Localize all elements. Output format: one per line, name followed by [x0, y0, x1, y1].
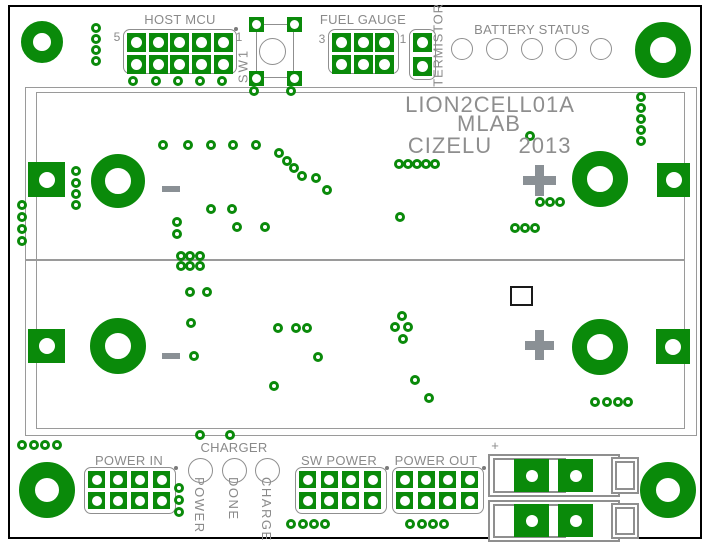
power-in-header-pad [153, 471, 170, 488]
via [158, 140, 168, 150]
host-mcu-header-pad-hole [174, 59, 185, 70]
termistor-header-pad [413, 57, 432, 76]
via [71, 189, 81, 199]
sw-power-header-pad [364, 471, 381, 488]
mount-hole-top-right [635, 22, 691, 78]
sw-power-header-pad-hole [324, 496, 334, 506]
via [17, 224, 27, 234]
via [405, 519, 415, 529]
power-out-header-pad-hole [443, 475, 453, 485]
via [227, 204, 237, 214]
sw-power-header-pad-hole [303, 475, 313, 485]
power-in-header-pad-hole [135, 496, 145, 506]
via [189, 351, 199, 361]
power-in-header-pad-hole [92, 475, 102, 485]
via [439, 519, 449, 529]
power-in-header-pad-hole [157, 496, 167, 506]
connector-pad-4 [558, 504, 593, 537]
via [309, 519, 319, 529]
fuel-gauge-header-pad [354, 33, 373, 52]
battery-connector-block-2-clamp-inner [615, 507, 635, 535]
host-mcu-header-pad-hole [218, 59, 229, 70]
sw-power-label: SW POWER [301, 454, 377, 467]
via [91, 56, 101, 66]
host-mcu-header-pad-hole [131, 37, 142, 48]
host-mcu-header-pad-hole [153, 59, 164, 70]
host-mcu-header-pad [149, 33, 168, 52]
connector-plus-label: + [491, 439, 499, 452]
via [185, 287, 195, 297]
via [602, 397, 612, 407]
via [417, 519, 427, 529]
power-out-header-pad-hole [465, 475, 475, 485]
host-mcu-pin1-label: 1 [236, 31, 243, 43]
power-out-header-pad-hole [465, 496, 475, 506]
via [636, 103, 646, 113]
via [17, 212, 27, 222]
via [91, 45, 101, 55]
via [311, 173, 321, 183]
sw-power-header-pad [342, 492, 359, 509]
via [174, 495, 184, 505]
termistor-header-pad-hole [417, 61, 428, 72]
via [398, 334, 408, 344]
sw-power-header-pad-hole [303, 496, 313, 506]
via [173, 76, 183, 86]
host-mcu-header-pad-hole [153, 37, 164, 48]
via [545, 197, 555, 207]
sw1-pad [249, 71, 264, 86]
host-mcu-header-pad-hole [131, 59, 142, 70]
battery2-minus-mark [162, 353, 180, 359]
fuel-gauge-header-pad-hole [379, 59, 390, 70]
via [249, 86, 259, 96]
sw1-pad-hole [290, 20, 299, 29]
battery2-pos-edge-pad [656, 329, 690, 364]
battery1-neg-edge-pad [28, 162, 65, 197]
termistor-header-pad-hole [417, 37, 428, 48]
via [286, 519, 296, 529]
via [17, 200, 27, 210]
power-out-header-pad [396, 492, 413, 509]
host-mcu-header-pad [149, 55, 168, 74]
via [390, 322, 400, 332]
sw1-pad [287, 71, 302, 86]
battery-status-led [521, 38, 543, 60]
power-in-header-pin1-dot [174, 466, 178, 470]
via [320, 519, 330, 529]
via [636, 136, 646, 146]
sw1-pad-hole [290, 74, 299, 83]
via [172, 229, 182, 239]
sw-power-header-pad-hole [368, 475, 378, 485]
connector-pad-1 [514, 459, 549, 492]
fuel-gauge-header-pad-hole [358, 59, 369, 70]
via [174, 483, 184, 493]
battery-status-led [451, 38, 473, 60]
via [410, 375, 420, 385]
sw-power-header-pad [299, 492, 316, 509]
termistor-header-pad [413, 33, 432, 52]
fuel-gauge-header-pad-hole [336, 59, 347, 70]
sw-power-header-pad [321, 471, 338, 488]
fuel-gauge-pin3-label: 3 [319, 33, 326, 45]
via [613, 397, 623, 407]
via [71, 166, 81, 176]
power-out-header-pad [418, 471, 435, 488]
power-out-header-pad [439, 492, 456, 509]
via [29, 440, 39, 450]
via [52, 440, 62, 450]
power-out-header-pad-hole [400, 475, 410, 485]
fuel-gauge-header-pad-hole [358, 37, 369, 48]
power-out-label: POWER OUT [395, 454, 478, 467]
power-in-header-pad-hole [135, 475, 145, 485]
via [172, 217, 182, 227]
sw-power-header-pad [299, 471, 316, 488]
via [195, 76, 205, 86]
connector-pad-3-hole [526, 515, 538, 527]
battery1-minus-mark [162, 186, 180, 192]
via [298, 519, 308, 529]
power-in-header-pad-hole [92, 496, 102, 506]
via [91, 23, 101, 33]
power-in-header-pad-hole [113, 475, 123, 485]
via [202, 287, 212, 297]
sw1-pad-hole [252, 74, 261, 83]
mount-hole-bottom-right [640, 462, 696, 518]
sw1-pad [249, 17, 264, 32]
host-mcu-header-pad [214, 33, 233, 52]
via [397, 311, 407, 321]
battery1-neg-edge-pad-hole [39, 172, 55, 188]
battery2-plus-terminal [572, 319, 628, 375]
via [186, 318, 196, 328]
via [195, 261, 205, 271]
power-in-header-pad-hole [113, 496, 123, 506]
sw1-label: SW1 [237, 49, 250, 83]
connector-pad-2-hole [570, 470, 582, 482]
connector-pad-4-hole [570, 515, 582, 527]
via [510, 223, 520, 233]
fuel-gauge-pin1-label: 1 [400, 33, 407, 45]
power-in-header-pad [131, 471, 148, 488]
via [128, 76, 138, 86]
sw-power-header-pad-hole [346, 475, 356, 485]
battery-status-led [590, 38, 612, 60]
connector-pad-3 [514, 504, 549, 537]
via [228, 140, 238, 150]
sw1-pad [287, 17, 302, 32]
power-in-header-pad [88, 471, 105, 488]
via [636, 114, 646, 124]
via [206, 140, 216, 150]
sw-power-header-pad-hole [324, 475, 334, 485]
via [286, 86, 296, 96]
sw-power-header-pad [321, 492, 338, 509]
led-power-label: POWER [193, 477, 206, 534]
via [71, 178, 81, 188]
via [424, 393, 434, 403]
via [183, 140, 193, 150]
power-out-header-pad [439, 471, 456, 488]
power-in-header-pad [88, 492, 105, 509]
power-in-header-pad [110, 492, 127, 509]
via [174, 507, 184, 517]
battery2-pos-edge-pad-hole [665, 339, 681, 355]
battery2-minus-terminal [90, 318, 146, 374]
via [260, 222, 270, 232]
charger-label: CHARGER [200, 441, 267, 454]
host-mcu-header-pad-hole [218, 37, 229, 48]
host-mcu-header-pad [192, 55, 211, 74]
via [185, 251, 195, 261]
via [322, 185, 332, 195]
battery1-plus-terminal [572, 151, 628, 207]
sw-power-header-pin1-dot [385, 466, 389, 470]
fuel-gauge-header-pad-hole [379, 37, 390, 48]
battery-connector-block-1-clamp-inner [615, 461, 635, 490]
power-in-header-pad [131, 492, 148, 509]
via [428, 519, 438, 529]
host-mcu-header-pad [170, 55, 189, 74]
battery1-pos-edge-pad [657, 163, 690, 197]
sw-power-header-pad-hole [346, 496, 356, 506]
host-mcu-header-pad-hole [196, 37, 207, 48]
via [225, 430, 235, 440]
sw-power-header-pad-hole [368, 496, 378, 506]
fuel-gauge-header-pad [354, 55, 373, 74]
battery2-neg-edge-pad-hole [39, 338, 55, 354]
via [273, 323, 283, 333]
fuel-gauge-header-pad [375, 55, 394, 74]
battery2-plus-mark [525, 341, 554, 350]
smd-component-outline [510, 286, 533, 306]
host-mcu-header-pad-hole [196, 59, 207, 70]
mount-hole-bottom-left [19, 462, 75, 518]
sw-power-header-pad [364, 492, 381, 509]
led-done-label: DONE [227, 477, 240, 521]
power-in-header-pad [153, 492, 170, 509]
via [520, 223, 530, 233]
fuel-gauge-header-pad-hole [336, 37, 347, 48]
board-year: 2013 [519, 135, 572, 157]
battery-status-led [555, 38, 577, 60]
host-mcu-header-pad [214, 55, 233, 74]
connector-pad-1-hole [526, 470, 538, 482]
via [71, 200, 81, 210]
via [430, 159, 440, 169]
via [313, 352, 323, 362]
via [636, 92, 646, 102]
board-org: MLAB [457, 113, 521, 135]
battery1-pos-edge-pad-hole [666, 172, 682, 188]
via [530, 223, 540, 233]
battery2-neg-edge-pad [28, 329, 65, 363]
host-mcu-header-pad [127, 55, 146, 74]
power-out-header-pad-hole [421, 496, 431, 506]
battery-holder-divider [25, 259, 685, 261]
via [251, 140, 261, 150]
via [636, 125, 646, 135]
power-out-header-pad [461, 492, 478, 509]
termistor-label: TERMISTOR [432, 3, 445, 87]
host-mcu-header-pad [192, 33, 211, 52]
host-mcu-header-pad-hole [174, 37, 185, 48]
connector-pad-2 [558, 459, 593, 492]
via [555, 197, 565, 207]
via [403, 322, 413, 332]
via [217, 76, 227, 86]
power-out-header-pad [396, 471, 413, 488]
via [195, 251, 205, 261]
via [297, 171, 307, 181]
sw1-button [259, 38, 286, 65]
via [17, 440, 27, 450]
via [590, 397, 600, 407]
power-out-header-pad-hole [443, 496, 453, 506]
sw-power-header-pad [342, 471, 359, 488]
via [40, 440, 50, 450]
host-mcu-pin5-label: 5 [114, 31, 121, 43]
via [151, 76, 161, 86]
via [269, 381, 279, 391]
host-mcu-header-pad [170, 33, 189, 52]
battery1-plus-mark [523, 176, 556, 185]
via [17, 236, 27, 246]
host-mcu-label: HOST MCU [144, 13, 216, 26]
via [302, 323, 312, 333]
power-in-label: POWER IN [95, 454, 163, 467]
battery-status-led [486, 38, 508, 60]
fuel-gauge-header-pad [332, 55, 351, 74]
power-in-header-pad [110, 471, 127, 488]
battery-status-label: BATTERY STATUS [474, 23, 590, 36]
led-charge-label: CHARGE [260, 477, 273, 542]
fuel-gauge-header-pad [332, 33, 351, 52]
power-in-header-pad-hole [157, 475, 167, 485]
power-out-header-pad [461, 471, 478, 488]
via [185, 261, 195, 271]
power-out-header-pad-hole [421, 475, 431, 485]
power-out-header-pad [418, 492, 435, 509]
fuel-gauge-header-pad [375, 33, 394, 52]
power-out-header-pin1-dot [482, 466, 486, 470]
via [291, 323, 301, 333]
mount-hole-top-left [21, 21, 63, 63]
via [195, 430, 205, 440]
via [91, 34, 101, 44]
battery1-minus-terminal [91, 154, 145, 208]
via [206, 204, 216, 214]
board-author: CIZELU [408, 135, 492, 157]
via [623, 397, 633, 407]
sw1-pad-hole [252, 20, 261, 29]
pcb-board-preview: HOST MCU 5 1 SW1 FUEL GAUGE 3 1 TERMISTO… [0, 0, 712, 548]
via [395, 212, 405, 222]
via [232, 222, 242, 232]
fuel-gauge-label: FUEL GAUGE [320, 13, 406, 26]
via [535, 197, 545, 207]
power-out-header-pad-hole [400, 496, 410, 506]
host-mcu-header-pad [127, 33, 146, 52]
